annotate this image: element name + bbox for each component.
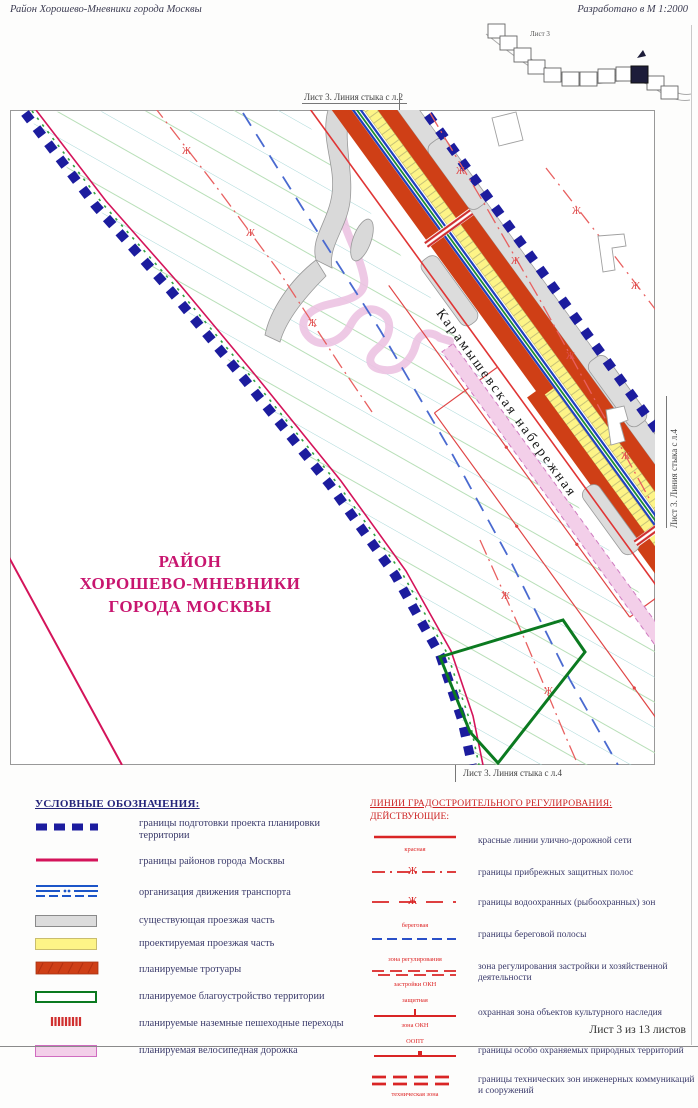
legend-item: организация движения транспорта	[35, 883, 365, 904]
coastal-protection-symbol: Ж	[370, 863, 460, 884]
legend-item: проектируемая проезжая часть	[35, 938, 365, 950]
current-sheet-marker	[631, 66, 648, 83]
join-tick-top	[399, 93, 400, 110]
svg-text:Ж: Ж	[631, 281, 640, 292]
legend-item: ООПТ границы особо охраняемых природных …	[370, 1039, 695, 1064]
scan-edge-bottom	[0, 1046, 698, 1047]
regulation-legend-subtitle: ДЕЙСТВУЮЩИЕ:	[370, 811, 695, 822]
legend-item: зона регулирования застройки ОКН зона ре…	[370, 957, 695, 989]
project-boundary-symbol	[35, 820, 99, 839]
svg-text:Ж: Ж	[621, 451, 630, 462]
traffic-organization-symbol	[35, 883, 99, 904]
development-regulation-zone-symbol: зона регулирования застройки ОКН	[370, 957, 460, 989]
legend-item: границы подготовки проекта планировки те…	[35, 818, 365, 842]
inset-sheet-label: Лист 3	[530, 30, 550, 38]
legend-item: Ж границы водоохранных (рыбоохранных) зо…	[370, 893, 695, 914]
edge-label-top: Лист 3. Линия стыка с л.2	[302, 92, 407, 104]
projected-roadway-symbol	[35, 938, 99, 950]
legend-item: красная красные линии улично-дорожной се…	[370, 829, 695, 854]
legend-item: береговая границы береговой полосы	[370, 923, 695, 948]
legend-title: УСЛОВНЫЕ ОБОЗНАЧЕНИЯ:	[35, 798, 365, 810]
legend-item: планируемое благоустройство территории	[35, 991, 365, 1003]
water-protection-symbol: Ж	[370, 893, 460, 914]
svg-text:Ж: Ж	[511, 256, 520, 267]
svg-text:Ж: Ж	[182, 146, 191, 157]
technical-zone-symbol: техническая зона	[370, 1073, 460, 1099]
svg-text:Ж: Ж	[308, 318, 317, 329]
sheet-number: Лист 3 из 13 листов	[589, 1024, 686, 1036]
svg-text:Ж: Ж	[408, 896, 417, 907]
legend-item: существующая проезжая часть	[35, 915, 365, 927]
svg-text:Ж: Ж	[456, 166, 465, 177]
edge-label-right: Лист 3. Линия стыка с л.4	[669, 396, 679, 528]
planned-sidewalks-symbol	[35, 961, 99, 980]
sheet-index-inset-map: Лист 3	[482, 14, 692, 106]
district-title: РАЙОН ХОРОШЕВО-МНЕВНИКИ ГОРОДА МОСКВЫ	[62, 551, 318, 618]
red-line-symbol: красная	[370, 829, 460, 854]
district-title-line2: ХОРОШЕВО-МНЕВНИКИ	[62, 573, 318, 595]
shore-strip-symbol: береговая	[370, 923, 460, 948]
legend-item: Ж границы прибрежных защитных полос	[370, 863, 695, 884]
join-tick-bottom	[455, 765, 456, 782]
edge-label-bottom: Лист 3. Линия стыка с л.4	[463, 768, 562, 778]
svg-text:Ж: Ж	[572, 206, 581, 217]
legend-item: техническая зона границы технических зон…	[370, 1073, 695, 1099]
svg-text:Ж: Ж	[501, 591, 510, 602]
planned-landscaping-symbol	[35, 991, 99, 1003]
svg-text:Ж: Ж	[408, 866, 417, 877]
legend-item: планируемые тротуары	[35, 961, 365, 980]
pedestrian-crossing-symbol	[35, 1014, 99, 1034]
legend-symbols: УСЛОВНЫЕ ОБОЗНАЧЕНИЯ: границы подготовки…	[35, 798, 365, 1068]
district-title-line3: ГОРОДА МОСКВЫ	[62, 596, 318, 618]
planning-map-sheet: { "header": { "left_title": "Район Хорош…	[0, 0, 698, 1057]
existing-roadway-symbol	[35, 915, 99, 927]
main-plan-map: Карамышевская набережная ЖЖЖ ЖЖЖЖ ЖЖ ЖЖ	[10, 110, 655, 765]
scan-edge-right	[691, 25, 692, 1045]
legend-item: планируемые наземные пешеходные переходы	[35, 1014, 365, 1034]
regulation-legend-title: ЛИНИИ ГРАДОСТРОИТЕЛЬНОГО РЕГУЛИРОВАНИЯ:	[370, 798, 695, 809]
district-title-line1: РАЙОН	[62, 551, 318, 573]
join-line-right	[666, 396, 667, 528]
document-title: Район Хорошево-Мневники города Москвы	[10, 4, 202, 15]
legend-item: границы районов города Москвы	[35, 853, 365, 872]
svg-text:Ж: Ж	[566, 351, 575, 362]
svg-text:Ж: Ж	[246, 228, 255, 239]
north-arrow-icon	[637, 50, 646, 58]
legend-regulation-lines: ЛИНИИ ГРАДОСТРОИТЕЛЬНОГО РЕГУЛИРОВАНИЯ: …	[370, 798, 695, 1108]
heritage-protection-zone-symbol: защитная зона ОКН	[370, 998, 460, 1030]
protected-natural-area-symbol: ООПТ	[370, 1039, 460, 1064]
district-border-symbol	[35, 853, 99, 872]
sheet-outline	[488, 24, 678, 99]
